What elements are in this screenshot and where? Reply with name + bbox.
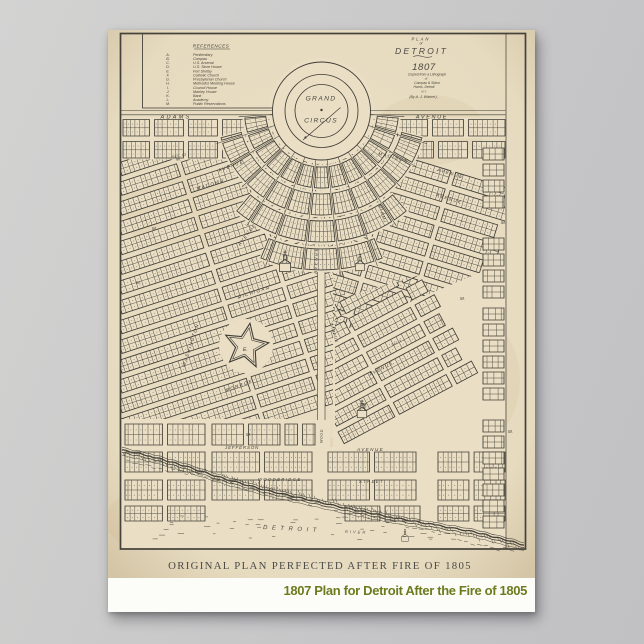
- svg-text:Harris, Detroit: Harris, Detroit: [414, 85, 436, 89]
- svg-text:M.: M.: [501, 220, 506, 225]
- svg-text:WOODBRIDGE: WOODBRIDGE: [258, 477, 302, 482]
- svg-text:REFERENCES: REFERENCES: [193, 44, 230, 49]
- svg-text:STREET: STREET: [359, 479, 384, 484]
- svg-text:M.: M.: [508, 429, 513, 434]
- svg-text:M.: M.: [136, 280, 141, 285]
- svg-text:DETROIT: DETROIT: [395, 46, 448, 56]
- svg-text:(By A. J. Warner) ,: (By A. J. Warner) ,: [409, 95, 438, 99]
- svg-text:M.: M.: [176, 157, 181, 162]
- svg-text:M.: M.: [460, 296, 465, 301]
- svg-text:GRAND: GRAND: [305, 96, 336, 103]
- svg-text:M.: M.: [246, 432, 251, 437]
- svg-text:E.: E.: [243, 347, 248, 353]
- svg-text:JEFFERSON: JEFFERSON: [224, 445, 259, 450]
- svg-text:M.: M.: [363, 232, 368, 237]
- svg-text:AVENUE: AVENUE: [415, 115, 448, 121]
- svg-text:WOOD: WOOD: [320, 429, 324, 443]
- svg-text:AVENUE: AVENUE: [313, 247, 319, 275]
- svg-text:M.: M.: [152, 226, 157, 231]
- svg-text:N.Y.: N.Y.: [421, 90, 427, 94]
- svg-text:Public Reservations: Public Reservations: [193, 102, 226, 106]
- svg-text:1807: 1807: [412, 62, 436, 73]
- svg-text:M.: M.: [166, 102, 170, 106]
- svg-text:RIVER: RIVER: [345, 529, 367, 535]
- svg-text:ORIGINAL PLAN PERFECTED AFTER: ORIGINAL PLAN PERFECTED AFTER FIRE OF 18…: [168, 560, 472, 572]
- svg-text:AVENUE: AVENUE: [356, 447, 384, 452]
- svg-text:CIRCUS: CIRCUS: [304, 118, 338, 125]
- svg-text:ADAMS: ADAMS: [160, 115, 192, 121]
